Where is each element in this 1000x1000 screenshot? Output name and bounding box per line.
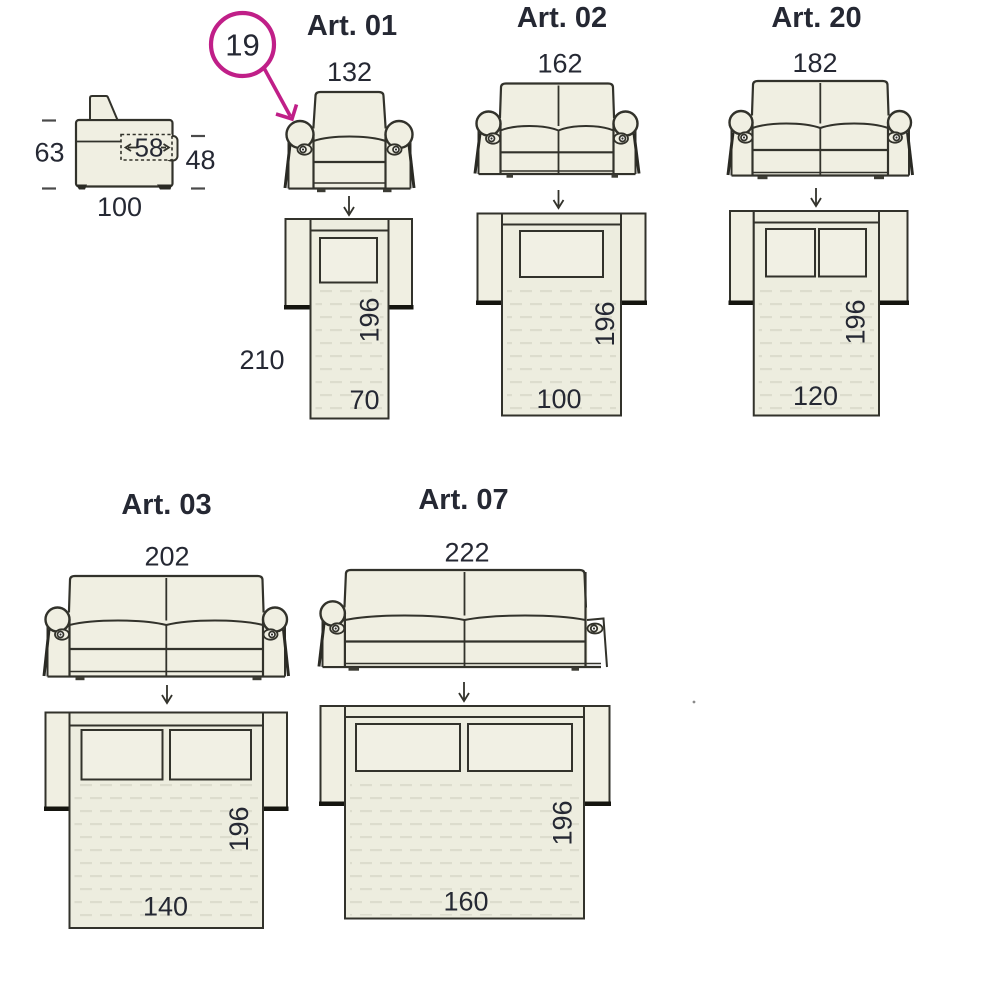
svg-text:Art. 07: Art. 07 xyxy=(418,484,508,516)
svg-text:202: 202 xyxy=(144,542,189,572)
svg-text:132: 132 xyxy=(327,57,372,87)
svg-text:120: 120 xyxy=(793,381,838,411)
svg-text:Art. 01: Art. 01 xyxy=(307,10,397,42)
svg-text:196: 196 xyxy=(224,806,254,851)
svg-text:100: 100 xyxy=(536,384,581,414)
svg-text:140: 140 xyxy=(143,892,188,922)
svg-text:Art. 03: Art. 03 xyxy=(121,489,211,521)
svg-text:Art. 02: Art. 02 xyxy=(517,2,607,34)
svg-text:182: 182 xyxy=(792,48,837,78)
svg-text:196: 196 xyxy=(841,299,871,344)
svg-text:19: 19 xyxy=(225,28,259,63)
svg-text:63: 63 xyxy=(34,138,64,168)
svg-text:Art. 20: Art. 20 xyxy=(771,2,861,34)
svg-text:196: 196 xyxy=(590,301,620,346)
svg-text:196: 196 xyxy=(355,297,385,342)
svg-text:210: 210 xyxy=(239,345,284,375)
svg-text:48: 48 xyxy=(185,145,215,175)
svg-text:160: 160 xyxy=(443,887,488,917)
svg-text:58: 58 xyxy=(135,133,164,163)
svg-text:100: 100 xyxy=(97,192,142,222)
svg-text:70: 70 xyxy=(349,385,379,415)
svg-text:196: 196 xyxy=(548,800,578,845)
svg-text:162: 162 xyxy=(537,49,582,79)
svg-text:222: 222 xyxy=(444,538,489,568)
